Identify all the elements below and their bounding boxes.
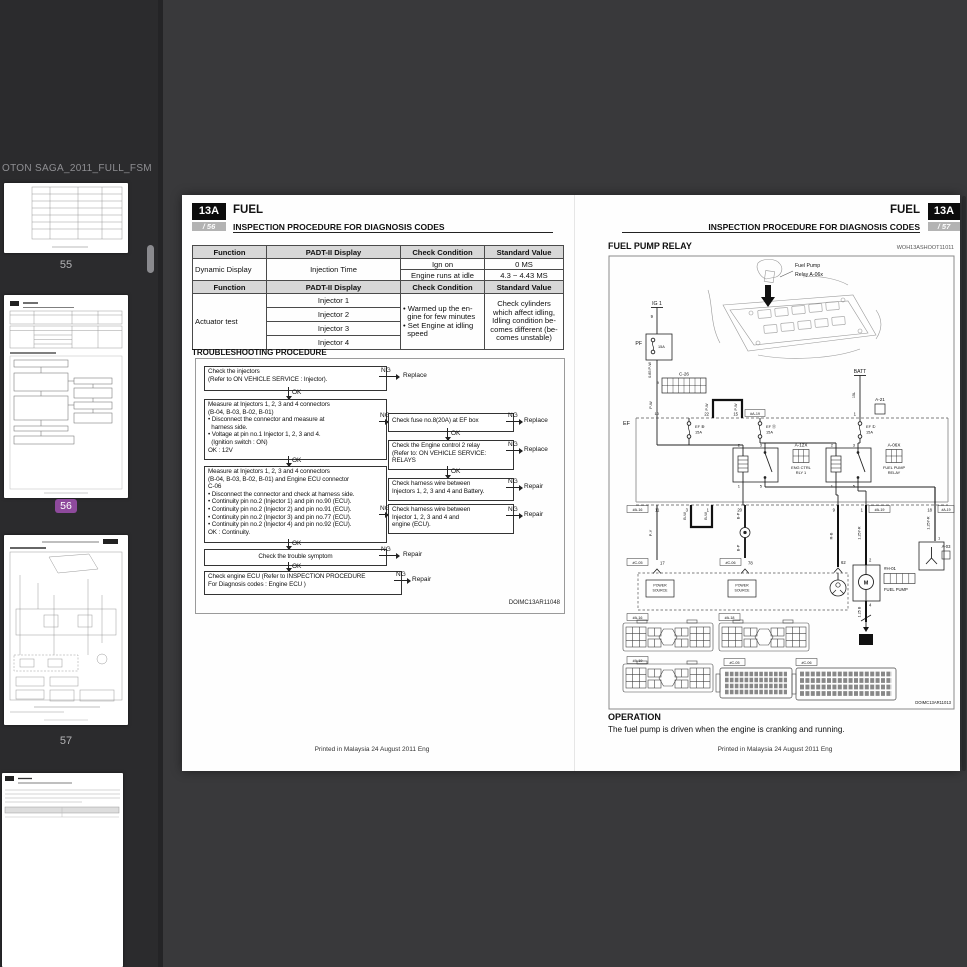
fuse1-label: EF ⑧	[695, 424, 705, 429]
diagram-labels: Fuel Pump Relay A-06x IG 1 9 PF 15A 0.85…	[623, 263, 952, 705]
page-seam	[574, 195, 575, 771]
pin-20: 20	[737, 508, 742, 513]
fc-arrow	[506, 450, 522, 451]
header-rule-right	[622, 232, 920, 233]
pinout-c05	[716, 668, 792, 698]
fc-ok: OK	[451, 468, 460, 475]
pf-amp: 15A	[658, 345, 665, 349]
document-title: OTON SAGA_2011_FULL_FSM	[2, 163, 154, 174]
t2-h-display: PADT-II Display	[267, 281, 401, 294]
relay2-pin5: 5	[853, 484, 856, 489]
pointer-arrow	[761, 285, 775, 307]
fuel-pump-relay-heading: FUEL PUMP RELAY	[608, 241, 692, 251]
page-spread: 13A FUEL / 56 INSPECTION PROCEDURE FOR D…	[182, 195, 960, 771]
pinout-badge-a16: #A-16	[633, 616, 643, 620]
fc-box-harness-ecu: Check harness wire between Injector 1, 2…	[388, 504, 514, 534]
fc-ng: NG	[508, 478, 518, 485]
fc-ok: OK	[292, 563, 301, 570]
pdf-viewer: OTON SAGA_2011_FULL_FSM 55	[0, 0, 967, 967]
pinout-a16	[623, 620, 713, 651]
motor-m: M	[864, 581, 869, 587]
dynamic-display-table: Function PADT-II Display Check Condition…	[192, 245, 564, 281]
pinout-c06	[792, 668, 896, 700]
fc-repair: Repair	[412, 576, 431, 583]
wire-batt: 15L	[852, 392, 856, 398]
badge-a19b: #A-19	[941, 508, 950, 512]
fc-box-check-relay: Check the Engine control 2 relay (Refer …	[388, 440, 514, 470]
chapter-title-left: FUEL	[233, 204, 263, 216]
pin-62: 62	[841, 560, 846, 565]
t1-val-1: 0 MS	[485, 259, 564, 270]
fuse2-amp: 15A	[766, 430, 773, 435]
operation-text: The fuel pump is driven when the engine …	[608, 725, 845, 734]
badge-a19-top: #A-19	[750, 412, 760, 416]
t2-h-condition: Check Condition	[401, 281, 485, 294]
wire-bp-2: B-P	[736, 544, 741, 551]
fc-ok: OK	[292, 389, 301, 396]
c26-pin-in: 9	[657, 380, 660, 385]
power-source-2a: POWER	[735, 584, 749, 588]
t1-h-function: Function	[193, 246, 267, 259]
sidebar-scrollbar-thumb[interactable]	[147, 245, 154, 273]
fc-box-harness-battery: Check harness wire between Injectors 1, …	[388, 478, 514, 501]
actuator-test-table: Function PADT-II Display Check Condition…	[192, 280, 564, 350]
t2-h-function: Function	[193, 281, 267, 294]
thick-wires	[691, 400, 866, 622]
pin-1-batt: 1	[854, 412, 857, 417]
fc-ng: NG	[508, 441, 518, 448]
pin-78: 78	[748, 561, 753, 566]
chapter-badge-left: 13A	[192, 203, 226, 220]
wire-pw: P-W	[649, 401, 653, 409]
thumbnail-sidebar: OTON SAGA_2011_FULL_FSM 55	[0, 0, 163, 967]
t2-condition: • Warmed up the en- gine for few minutes…	[401, 294, 485, 350]
figure-code-left: DOIMC13AR11048	[509, 600, 560, 606]
fc-ng: NG	[381, 546, 391, 553]
page-number-badge-right: / 57	[928, 222, 960, 231]
c26-label: C-26	[679, 372, 689, 377]
footer-left: Printed in Malaysia 24 August 2011 Eng	[277, 746, 467, 753]
relay1-pin1: 1	[738, 484, 741, 489]
t1-display: Injection Time	[267, 259, 401, 281]
wire-bp-1: B-P	[736, 512, 741, 519]
fuse1-amp: 15A	[695, 430, 702, 435]
fc-arrow	[379, 421, 388, 422]
wire-b: 1.25 B	[858, 606, 862, 617]
t2-injector-1: Injector 1	[267, 294, 401, 308]
a12x-name-2: RLY 1	[796, 470, 806, 475]
pin-11: 11	[655, 508, 660, 513]
callout-line-1: Fuel Pump	[795, 263, 820, 269]
fc-box-check-ecu: Check engine ECU (Refer to INSPECTION PR…	[204, 571, 402, 595]
fc-repair: Repair	[524, 483, 543, 490]
t1-val-2: 4.3 ~ 4.43 MS	[485, 270, 564, 281]
a21-label: A-21	[875, 397, 885, 402]
relay2-pin1: 1	[831, 484, 834, 489]
wire-yr2: 1.25Y-R	[927, 516, 931, 530]
troubleshooting-flowchart: Check the injectors (Refer to ON VEHICLE…	[195, 358, 565, 614]
pin-17: 17	[660, 561, 665, 566]
pinout-badge-a18: #A-18	[725, 616, 735, 620]
fc-box-measure-injectors: Measure at Injectors 1, 2, 3 and 4 conne…	[204, 399, 387, 460]
fc-arrow	[394, 580, 410, 581]
power-source-2b: SOURCE	[735, 589, 751, 593]
pf-label: PF	[635, 341, 642, 347]
fc-arrow	[506, 421, 522, 422]
fc-arrow	[288, 387, 289, 399]
thumbnail-page-56-selected[interactable]	[4, 295, 128, 498]
ig1-pin: 9	[651, 314, 654, 319]
section-title-left: INSPECTION PROCEDURE FOR DIAGNOSIS CODES	[233, 222, 445, 232]
badge-c05: #C-05	[632, 561, 642, 565]
pinout-a18	[719, 620, 809, 651]
thumbnail-56-preview	[4, 295, 128, 498]
t2-value: Check cylinders which affect idling, Idl…	[485, 294, 564, 350]
pinout-badge-c06: #C-06	[801, 661, 811, 665]
t1-h-condition: Check Condition	[401, 246, 485, 259]
selected-page-badge: 56	[55, 499, 77, 513]
pin-22: 22	[704, 412, 709, 417]
t2-injector-2: Injector 2	[267, 308, 401, 322]
c26-pin-out: 10	[655, 411, 660, 416]
fc-repair: Repair	[403, 551, 422, 558]
pin-1b: 1	[861, 508, 864, 513]
h01-label: #H-01	[884, 566, 897, 571]
batt-label: BATT	[854, 369, 866, 375]
fc-arrow	[506, 515, 522, 516]
fuse3-label: EF ①	[866, 424, 876, 429]
fc-arrow	[379, 514, 388, 515]
thumbnail-page-58[interactable]	[2, 773, 123, 967]
a06x-name-2: RELAY	[888, 470, 901, 475]
a03-pin: 1	[938, 536, 941, 541]
t1-h-display: PADT-II Display	[267, 246, 401, 259]
fc-ng: NG	[508, 412, 518, 419]
power-source-1b: SOURCE	[653, 589, 669, 593]
t1-h-value: Standard Value	[485, 246, 564, 259]
wire-pw-right: P-W	[734, 403, 738, 411]
ef-label: EF	[623, 421, 631, 427]
fuse2-label: EF ⑪	[766, 424, 776, 429]
fc-ng: NG	[381, 367, 391, 374]
t2-h-value: Standard Value	[485, 281, 564, 294]
callout-leader	[780, 271, 793, 277]
badge-a16: #A-16	[633, 508, 643, 512]
fc-box-check-injectors: Check the injectors (Refer to ON VEHICLE…	[204, 366, 387, 391]
page-number-badge-left: / 56	[192, 222, 226, 231]
thumbnail-page-55[interactable]	[4, 183, 128, 253]
t2-function: Actuator test	[193, 294, 267, 350]
thumbnail-label-56[interactable]: 56	[4, 500, 128, 512]
t2-injector-3: Injector 3	[267, 322, 401, 336]
fc-ng: NG	[508, 506, 518, 513]
badge-a19: #A-19	[875, 508, 885, 512]
ground-point-13: 13	[863, 639, 869, 645]
fuel-pump-label: FUEL PUMP	[884, 587, 908, 592]
a06x-label: A-06X	[888, 443, 901, 448]
fc-arrow	[379, 555, 399, 556]
fc-arrow	[379, 376, 399, 377]
fuel-pump-relay-wiring-diagram: Fuel Pump Relay A-06x IG 1 9 PF 15A 0.85…	[608, 255, 955, 710]
pinout-badge-a19: #A-19	[633, 659, 643, 663]
pin-9: 9	[833, 508, 836, 513]
main-scrollbar-track[interactable]	[962, 196, 966, 771]
fc-arrow	[288, 562, 289, 571]
fc-ok: OK	[451, 430, 460, 437]
fc-box-continuity: Measure at Injectors 1, 2, 3 and 4 conne…	[204, 466, 387, 543]
t1-cond-2: Engine runs at idle	[401, 270, 485, 281]
a03-label: A-03	[942, 544, 952, 549]
pinout-a19	[623, 661, 713, 692]
troubleshooting-heading: TROUBLESHOOTING PROCEDURE	[192, 348, 327, 357]
wire-yr: 1.25Y-R	[858, 526, 862, 540]
t1-cond-1: Ign on	[401, 259, 485, 270]
fc-arrow	[447, 466, 448, 478]
power-source-1a: POWER	[653, 584, 667, 588]
pin-18: 18	[927, 508, 932, 513]
fc-repair: Repair	[524, 511, 543, 518]
a12x-label: A-12X	[795, 443, 808, 448]
ground-arrow	[863, 627, 869, 632]
fc-arrow	[447, 428, 448, 440]
pin-1: 1	[707, 508, 710, 513]
heading-code: WOH13ASHOOT11011	[897, 245, 954, 251]
fc-arrow	[506, 487, 522, 488]
ig1-label: IG 1	[652, 301, 662, 307]
ef-box-outline	[636, 418, 948, 502]
header-rule-left	[233, 232, 553, 233]
fc-replace: Replace	[524, 417, 548, 424]
fc-replace: Replace	[403, 372, 427, 379]
wire-085pw: 0.85 P-W	[648, 362, 652, 378]
thumbnail-label-55[interactable]: 55	[4, 259, 128, 271]
chapter-badge-right: 13A	[928, 203, 960, 220]
pin-3: 3	[686, 508, 689, 513]
fc-ok: OK	[292, 457, 301, 464]
t1-function: Dynamic Display	[193, 259, 267, 281]
wire-rb: R-B	[829, 532, 834, 539]
thumbnail-page-57[interactable]	[4, 535, 128, 725]
wire-py: P-Y	[648, 529, 653, 536]
wire-bw-l: B-W	[682, 512, 687, 520]
fc-arrow	[288, 539, 289, 549]
badge-c06: #C-06	[725, 561, 735, 565]
section-title-right: INSPECTION PROCEDURE FOR DIAGNOSIS CODES	[708, 222, 920, 232]
relay2-pin3: 3	[853, 443, 856, 448]
fuse3-amp: 15A	[866, 430, 873, 435]
chapter-title-right: FUEL	[890, 204, 920, 216]
pin-15: 15	[733, 412, 738, 417]
fc-ng: NG	[396, 571, 406, 578]
thumbnail-label-57[interactable]: 57	[4, 735, 128, 747]
callout-line-2: Relay A-06x	[795, 272, 823, 278]
footer-right: Printed in Malaysia 24 August 2011 Eng	[680, 746, 870, 753]
thumbnail-55-preview	[4, 183, 128, 253]
wire-bw-r: B-W	[703, 512, 708, 520]
pin-2-motor: 2	[869, 558, 872, 563]
fc-ok: OK	[292, 540, 301, 547]
operation-heading: OPERATION	[608, 712, 661, 722]
thumbnail-58-preview	[2, 773, 123, 967]
pin-4-motor: 4	[869, 603, 872, 608]
fc-arrow	[288, 456, 289, 466]
wire-pw-left: P-W	[705, 403, 709, 411]
pinout-badge-c05: #C-05	[729, 661, 739, 665]
figure-code-right: DOIMC13AR11013	[915, 700, 951, 705]
fc-replace: Replace	[524, 446, 548, 453]
relay1-pin5: 5	[760, 484, 763, 489]
thumbnail-57-preview	[4, 535, 128, 725]
